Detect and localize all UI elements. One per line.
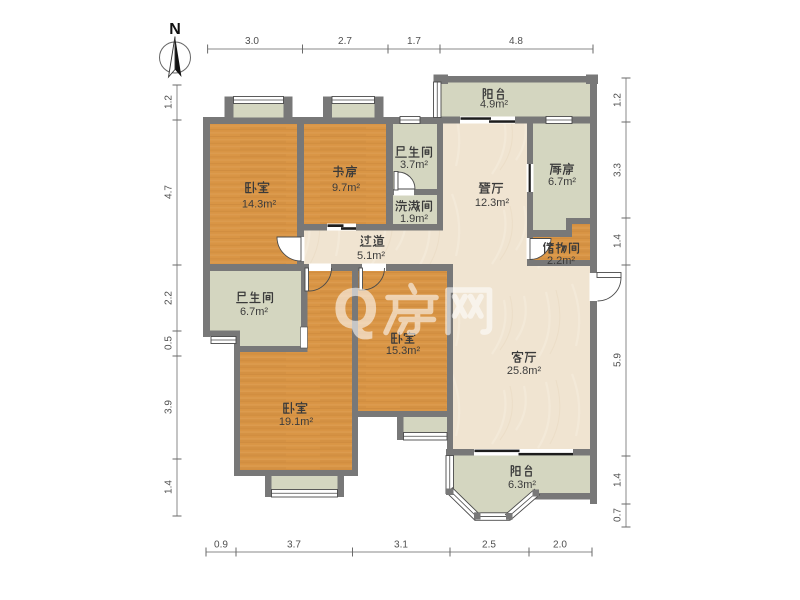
svg-text:15.3m²: 15.3m² (386, 345, 421, 357)
svg-text:2.5: 2.5 (482, 540, 496, 551)
svg-text:Q: Q (334, 277, 378, 340)
svg-text:0.5: 0.5 (164, 336, 175, 350)
svg-text:1.2: 1.2 (164, 95, 175, 109)
svg-text:2.7: 2.7 (338, 36, 352, 47)
svg-text:3.0: 3.0 (245, 36, 259, 47)
svg-text:3.3: 3.3 (613, 163, 624, 177)
svg-text:1.4: 1.4 (613, 473, 624, 487)
svg-text:1.2: 1.2 (613, 93, 624, 107)
svg-text:6.7m²: 6.7m² (240, 306, 268, 318)
svg-text:4.9m²: 4.9m² (480, 99, 508, 111)
svg-text:3.9: 3.9 (164, 400, 175, 414)
svg-text:3.7m²: 3.7m² (400, 159, 428, 171)
svg-text:1.9m²: 1.9m² (400, 213, 428, 225)
svg-text:0.7: 0.7 (613, 508, 624, 522)
svg-text:1.7: 1.7 (407, 36, 421, 47)
svg-text:2.0: 2.0 (553, 540, 567, 551)
svg-text:2.2m²: 2.2m² (547, 255, 575, 267)
svg-text:4.7: 4.7 (164, 185, 175, 199)
svg-text:3.1: 3.1 (394, 540, 408, 551)
svg-text:0.9: 0.9 (214, 540, 228, 551)
svg-text:9.7m²: 9.7m² (332, 182, 360, 194)
svg-text:6.7m²: 6.7m² (548, 176, 576, 188)
svg-text:12.3m²: 12.3m² (475, 197, 510, 209)
svg-text:1.4: 1.4 (164, 480, 175, 494)
svg-text:14.3m²: 14.3m² (242, 199, 277, 211)
svg-text:25.8m²: 25.8m² (507, 365, 542, 377)
svg-text:5.9: 5.9 (613, 353, 624, 367)
svg-text:N: N (169, 21, 181, 38)
svg-text:5.1m²: 5.1m² (357, 250, 385, 262)
svg-text:6.3m²: 6.3m² (508, 479, 536, 491)
svg-text:2.2: 2.2 (164, 291, 175, 305)
svg-text:1.4: 1.4 (613, 234, 624, 248)
svg-text:19.1m²: 19.1m² (279, 416, 314, 428)
svg-text:4.8: 4.8 (509, 36, 523, 47)
svg-text:3.7: 3.7 (287, 540, 301, 551)
